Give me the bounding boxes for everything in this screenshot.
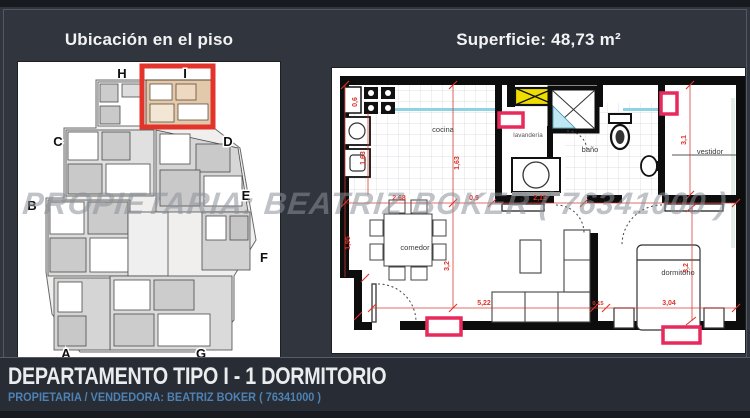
dim-1-63-b: 1,63 xyxy=(454,156,461,170)
room-label-dormitorio: dormitorio xyxy=(661,268,694,277)
floor-location-panel: A B C D E F G H I xyxy=(18,62,280,362)
unit-label-F: F xyxy=(260,250,268,265)
highlighted-unit xyxy=(146,80,212,126)
room-label-comedor: comedor xyxy=(400,243,430,252)
tv-cabinets xyxy=(502,204,723,211)
room-label-lavanderia: lavandería xyxy=(513,132,543,139)
tv-label-a: tv xyxy=(520,197,526,204)
dining-set xyxy=(370,200,446,280)
bottom-strip xyxy=(0,411,750,418)
room-label-bano: baño xyxy=(582,145,599,154)
dim-1-95: 1,95 xyxy=(345,236,352,250)
top-strip xyxy=(0,0,750,7)
room-label-cocina: cocina xyxy=(432,125,455,134)
left-panel-title: Ubicación en el piso xyxy=(18,30,280,50)
apartment-plan-panel: 0,6 1,63 1,63 2,68 0,9 2,15 1,95 3,2 5,2… xyxy=(332,68,745,353)
dim-2-15: 2,15 xyxy=(533,195,547,202)
dim-0-15: 0,15 xyxy=(592,301,604,307)
tv-label-b: tv xyxy=(676,197,682,204)
owner-contact-text: PROPIETARIA / VENDEDORA: BEATRIZ BOKER (… xyxy=(8,392,321,404)
dim-0-6: 0,6 xyxy=(352,97,359,107)
dim-1-63-a: 1,63 xyxy=(360,151,367,165)
dim-3-04: 3,04 xyxy=(662,300,676,307)
footer-bar: DEPARTAMENTO TIPO I - 1 DORMITORIO PROPI… xyxy=(0,357,750,412)
flyer-page: Ubicación en el piso Superficie: 48,73 m… xyxy=(0,0,750,418)
room-label-vestidor: vestidor xyxy=(697,147,724,156)
dim-3-1: 3,1 xyxy=(681,135,688,145)
unit-label-I: I xyxy=(183,66,187,81)
dim-3-2-a: 3,2 xyxy=(444,261,451,271)
building-plan-image: A B C D E F G H I xyxy=(18,62,280,362)
apartment-plan-image: 0,6 1,63 1,63 2,68 0,9 2,15 1,95 3,2 5,2… xyxy=(332,68,745,353)
bed xyxy=(614,245,724,330)
shower xyxy=(550,88,597,131)
unit-label-D: D xyxy=(223,134,232,149)
dim-2-68: 2,68 xyxy=(392,195,406,202)
unit-label-H: H xyxy=(117,66,126,81)
apartment-type-title: DEPARTAMENTO TIPO I - 1 DORMITORIO xyxy=(8,363,386,391)
right-window-strip xyxy=(731,98,735,248)
unit-label-C: C xyxy=(53,134,63,149)
right-panel-title: Superficie: 48,73 m² xyxy=(332,30,745,50)
dim-5-22: 5,22 xyxy=(477,300,491,307)
dim-0-9: 0,9 xyxy=(469,195,479,202)
unit-label-E: E xyxy=(242,188,251,203)
unit-label-B: B xyxy=(27,198,36,213)
